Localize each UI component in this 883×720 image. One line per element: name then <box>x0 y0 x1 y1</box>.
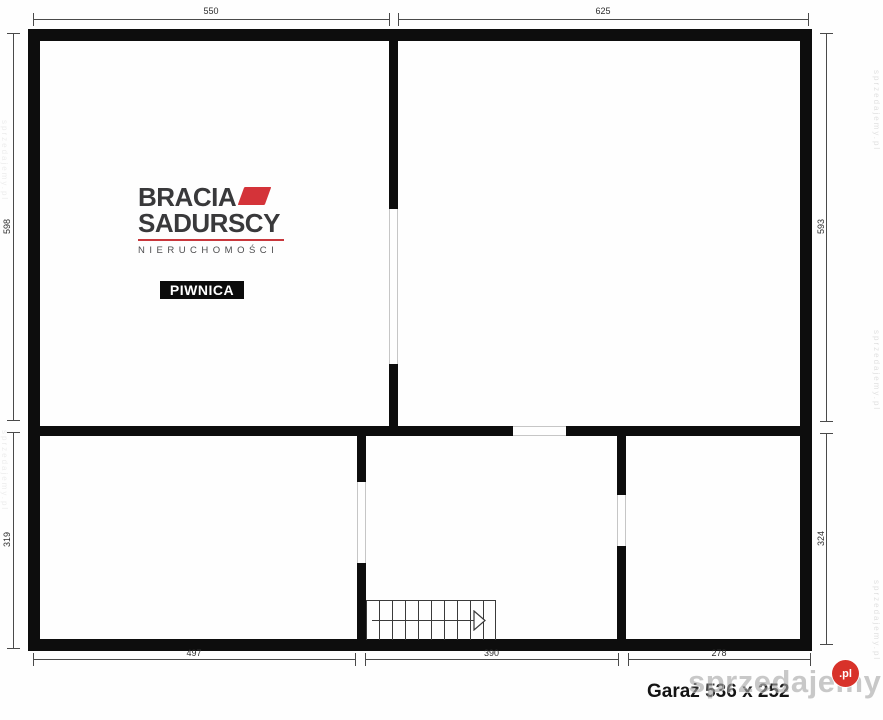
side-watermark-right: sprzedajemy.pl <box>872 330 881 411</box>
side-watermark-left: sprzedajemy.pl <box>0 430 9 511</box>
door-jamb-line <box>513 426 566 427</box>
room-label-piwnica: PIWNICA <box>160 281 244 299</box>
door-jamb-line <box>357 482 358 563</box>
dim-line-left-upper <box>13 33 14 420</box>
dim-label-right-upper: 593 <box>815 33 826 421</box>
wall-middle-seg1 <box>40 426 513 436</box>
stairs-direction-line <box>372 620 475 621</box>
dim-line-bottom-middle <box>365 659 618 660</box>
wall-outer-right <box>800 29 812 651</box>
wall-outer-top <box>28 29 812 41</box>
logo-red-flag-icon <box>238 187 272 205</box>
watermark-tld: .pl <box>839 668 852 680</box>
dim-line-left-lower <box>13 432 14 648</box>
logo-line2: SADURSCY <box>138 210 284 236</box>
wall-partition-lowerright-seg1 <box>617 436 626 495</box>
door-jamb-line <box>365 482 366 563</box>
wall-partition-lowerright-seg2 <box>617 546 626 639</box>
dim-label-top-left: 550 <box>33 6 389 16</box>
door-jamb-line <box>513 435 566 436</box>
door-jamb-line <box>389 209 390 364</box>
stairs-arrow-icon <box>473 610 487 631</box>
side-watermark-left: sprzedajemy.pl <box>0 120 9 201</box>
agency-logo: BRACIA SADURSCY NIERUCHOMOŚCI <box>138 184 284 256</box>
logo-tagline: NIERUCHOMOŚCI <box>138 245 284 256</box>
dim-label-top-right: 625 <box>398 6 808 16</box>
wall-outer-left <box>28 29 40 651</box>
wall-partition-lowerleft-seg2 <box>357 563 366 639</box>
logo-line1: BRACIA <box>138 184 236 210</box>
dim-line-top-right <box>398 19 808 20</box>
side-watermark-right: sprzedajemy.pl <box>872 70 881 151</box>
wall-middle-seg2 <box>566 426 800 436</box>
wall-partition-lowerleft-seg1 <box>357 436 366 482</box>
logo-underline <box>138 239 284 241</box>
side-watermark-right: sprzedajemy.pl <box>872 580 881 661</box>
dim-label-bottom-right: 278 <box>628 648 810 658</box>
dim-label-bottom-left: 497 <box>33 648 355 658</box>
dim-label-right-lower: 324 <box>815 433 826 644</box>
dim-line-right-upper <box>826 33 827 421</box>
door-jamb-line <box>617 495 618 546</box>
watermark-pl-badge: .pl <box>832 660 859 687</box>
dim-line-bottom-left <box>33 659 355 660</box>
door-jamb-line <box>625 495 626 546</box>
wall-partition-upper-seg1 <box>389 41 398 209</box>
dim-label-left-upper: 598 <box>1 33 12 420</box>
door-jamb-line <box>397 209 398 364</box>
dim-line-right-lower <box>826 433 827 644</box>
dim-line-bottom-right <box>628 659 810 660</box>
dim-line-top-left <box>33 19 389 20</box>
floor-plan-page: sprzedajemy.pl sprzedajemy.pl sprzedajem… <box>0 0 883 720</box>
dim-label-bottom-middle: 390 <box>365 648 618 658</box>
stairs <box>366 600 496 640</box>
